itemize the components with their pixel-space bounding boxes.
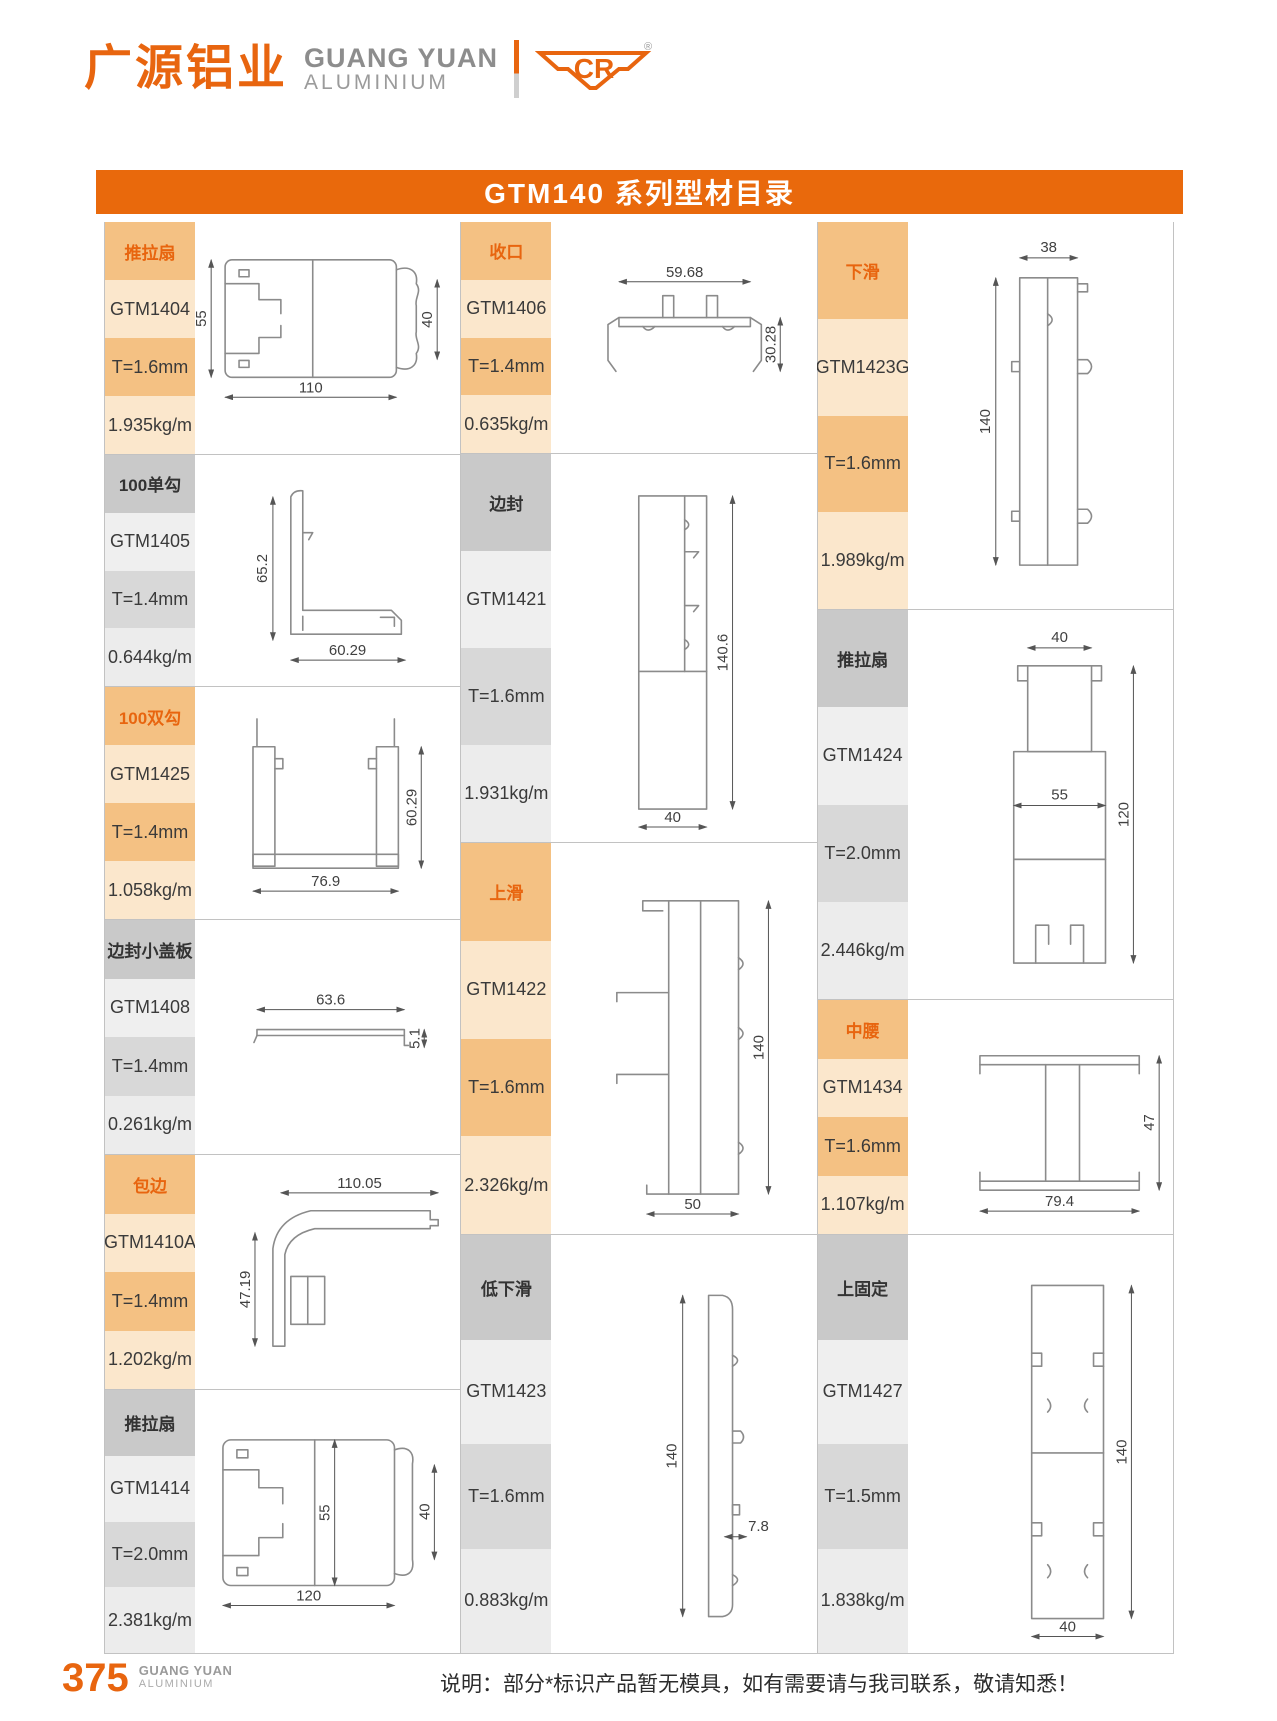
profile-drawing-gtm1427: 140 40 bbox=[908, 1235, 1173, 1653]
cr-logo-letters: CR bbox=[574, 53, 614, 84]
dim-label: 47 bbox=[1141, 1114, 1158, 1131]
dim-label: 59.68 bbox=[666, 264, 703, 281]
dim-label: 50 bbox=[685, 1196, 702, 1213]
model-cell: GTM1414 bbox=[105, 1456, 195, 1522]
logo-divider bbox=[514, 40, 519, 98]
profile-drawing-gtm1404: 55 110 40 bbox=[195, 222, 460, 454]
dim-label: 40 bbox=[416, 1503, 433, 1520]
dim-label: 120 bbox=[296, 1587, 321, 1604]
product-group-gtm1408: 边封小盖板 GTM1408 T=1.4mm 0.261kg/m 63.6 5.1 bbox=[105, 920, 460, 1155]
brand-name-en: GUANG YUAN ALUMINIUM bbox=[304, 44, 498, 94]
catalog-column-1: 推拉扇 GTM1404 T=1.6mm 1.935kg/m bbox=[105, 222, 460, 1653]
profile-geometry bbox=[608, 296, 761, 372]
drawing-area: 63.6 5.1 bbox=[195, 920, 460, 1154]
label-column: 上滑 GTM1422 T=1.6mm 2.326kg/m bbox=[461, 843, 551, 1234]
category-cell: 低下滑 bbox=[461, 1235, 551, 1340]
brand-en-line2: ALUMINIUM bbox=[304, 72, 498, 94]
weight-cell: 2.326kg/m bbox=[461, 1136, 551, 1234]
dim-label: 55 bbox=[317, 1504, 334, 1521]
thickness-cell: T=1.4mm bbox=[105, 1037, 195, 1096]
drawing-area: 40 55 120 bbox=[908, 610, 1173, 999]
profile-geometry bbox=[980, 1056, 1139, 1190]
profile-geometry bbox=[639, 496, 707, 809]
thickness-cell: T=1.6mm bbox=[105, 338, 195, 396]
dim-label: 60.29 bbox=[329, 642, 366, 659]
thickness-cell: T=1.4mm bbox=[105, 1272, 195, 1331]
product-group-gtm1414: 推拉扇 GTM1414 T=2.0mm 2.381kg/m bbox=[105, 1390, 460, 1653]
catalog-title: GTM140 系列型材目录 bbox=[484, 172, 795, 212]
thickness-cell: T=1.4mm bbox=[461, 338, 551, 396]
profile-drawing-gtm1421: 140.6 40 bbox=[551, 454, 816, 842]
profile-drawing-gtm1423: 140 7.8 bbox=[551, 1235, 816, 1653]
model-cell: GTM1405 bbox=[105, 513, 195, 571]
profile-geometry bbox=[1013, 666, 1105, 963]
model-cell: GTM1408 bbox=[105, 979, 195, 1038]
thickness-cell: T=1.6mm bbox=[818, 416, 908, 513]
profile-drawing-gtm1414: 55 120 40 bbox=[195, 1390, 460, 1653]
profile-drawing-gtm1434: 79.4 47 bbox=[908, 1000, 1173, 1234]
category-cell: 中腰 bbox=[818, 1000, 908, 1059]
weight-cell: 2.446kg/m bbox=[818, 902, 908, 999]
product-group-gtm1423: 低下滑 GTM1423 T=1.6mm 0.883kg/m 140 bbox=[461, 1235, 816, 1653]
model-cell: GTM1425 bbox=[105, 745, 195, 803]
weight-cell: 0.644kg/m bbox=[105, 628, 195, 686]
label-column: 100单勾 GTM1405 T=1.4mm 0.644kg/m bbox=[105, 455, 195, 686]
footer-brand-line2: ALUMINIUM bbox=[139, 1678, 233, 1690]
label-column: 推拉扇 GTM1424 T=2.0mm 2.446kg/m bbox=[818, 610, 908, 999]
category-cell: 100双勾 bbox=[105, 687, 195, 745]
dim-label: 140 bbox=[751, 1035, 768, 1060]
dim-label: 40 bbox=[419, 311, 436, 328]
label-column: 包边 GTM1410A T=1.4mm 1.202kg/m bbox=[105, 1155, 195, 1389]
label-column: 上固定 GTM1427 T=1.5mm 1.838kg/m bbox=[818, 1235, 908, 1653]
model-cell: GTM1423G bbox=[818, 319, 908, 416]
category-cell: 推拉扇 bbox=[105, 1390, 195, 1456]
drawing-area: 140 7.8 bbox=[551, 1235, 816, 1653]
thickness-cell: T=1.5mm bbox=[818, 1444, 908, 1549]
drawing-area: 76.9 60.29 bbox=[195, 687, 460, 919]
profile-drawing-gtm1423g: 38 140 bbox=[908, 222, 1173, 609]
dim-label: 120 bbox=[1115, 802, 1132, 827]
dim-label: 7.8 bbox=[748, 1518, 769, 1535]
profile-geometry bbox=[253, 719, 398, 868]
dim-label: 40 bbox=[665, 809, 682, 826]
profile-drawing-gtm1406: 59.68 30.28 bbox=[551, 222, 816, 453]
label-column: 低下滑 GTM1423 T=1.6mm 0.883kg/m bbox=[461, 1235, 551, 1653]
dim-label: 140.6 bbox=[715, 634, 732, 671]
label-column: 推拉扇 GTM1404 T=1.6mm 1.935kg/m bbox=[105, 222, 195, 454]
profile-geometry bbox=[273, 1211, 438, 1346]
drawing-area: 140 40 bbox=[908, 1235, 1173, 1653]
label-column: 下滑 GTM1423G T=1.6mm 1.989kg/m bbox=[818, 222, 908, 609]
drawing-area: 59.68 30.28 bbox=[551, 222, 816, 453]
dim-label: 76.9 bbox=[311, 873, 340, 890]
drawing-area: 140 50 bbox=[551, 843, 816, 1234]
model-cell: GTM1427 bbox=[818, 1340, 908, 1445]
category-cell: 推拉扇 bbox=[105, 222, 195, 280]
category-cell: 下滑 bbox=[818, 222, 908, 319]
thickness-cell: T=1.6mm bbox=[461, 1444, 551, 1549]
label-column: 边封小盖板 GTM1408 T=1.4mm 0.261kg/m bbox=[105, 920, 195, 1154]
product-group-gtm1424: 推拉扇 GTM1424 T=2.0mm 2.446kg/m bbox=[818, 610, 1173, 1000]
profile-geometry bbox=[291, 491, 402, 635]
product-group-gtm1404: 推拉扇 GTM1404 T=1.6mm 1.935kg/m bbox=[105, 222, 460, 455]
drawing-area: 55 110 40 bbox=[195, 222, 460, 454]
brand-en-line1: GUANG YUAN bbox=[304, 44, 498, 72]
weight-cell: 1.058kg/m bbox=[105, 861, 195, 919]
dim-label: 47.19 bbox=[237, 1271, 254, 1308]
dim-label: 65.2 bbox=[254, 554, 271, 583]
brand-name-cn: 广源铝业 bbox=[84, 45, 288, 93]
dim-label: 140 bbox=[664, 1443, 681, 1468]
dim-label: 63.6 bbox=[316, 992, 345, 1009]
weight-cell: 1.989kg/m bbox=[818, 512, 908, 609]
category-cell: 推拉扇 bbox=[818, 610, 908, 707]
dim-label: 40 bbox=[1059, 1619, 1076, 1636]
model-cell: GTM1410A bbox=[105, 1214, 195, 1273]
dim-label: 5.1 bbox=[406, 1028, 423, 1049]
category-cell: 上固定 bbox=[818, 1235, 908, 1340]
page-footer: 375 GUANG YUAN ALUMINIUM bbox=[62, 1660, 232, 1696]
category-cell: 边封 bbox=[461, 454, 551, 551]
catalog-title-bar: GTM140 系列型材目录 bbox=[96, 170, 1183, 214]
category-cell: 边封小盖板 bbox=[105, 920, 195, 979]
dim-label: 40 bbox=[1051, 629, 1068, 646]
dim-label: 60.29 bbox=[403, 789, 420, 826]
catalog-column-3: 下滑 GTM1423G T=1.6mm 1.989kg/m bbox=[817, 222, 1173, 1653]
label-column: 收口 GTM1406 T=1.4mm 0.635kg/m bbox=[461, 222, 551, 453]
registered-mark: ® bbox=[644, 41, 652, 53]
profile-geometry bbox=[709, 1295, 744, 1616]
thickness-cell: T=2.0mm bbox=[818, 805, 908, 902]
profile-geometry bbox=[617, 901, 743, 1194]
weight-cell: 1.935kg/m bbox=[105, 396, 195, 454]
dim-label: 140 bbox=[976, 409, 993, 434]
dim-label: 30.28 bbox=[763, 326, 780, 363]
footer-note: 说明：部分*标识产品暂无模具，如有需要请与我司联系，敬请知悉！ bbox=[440, 1668, 1078, 1698]
model-cell: GTM1424 bbox=[818, 707, 908, 804]
profile-drawing-gtm1422: 140 50 bbox=[551, 843, 816, 1234]
category-cell: 上滑 bbox=[461, 843, 551, 941]
product-group-gtm1410a: 包边 GTM1410A T=1.4mm 1.202kg/m 110.05 47.… bbox=[105, 1155, 460, 1390]
model-cell: GTM1406 bbox=[461, 280, 551, 338]
profile-catalog-table: 推拉扇 GTM1404 T=1.6mm 1.935kg/m bbox=[104, 222, 1174, 1654]
footer-brand: GUANG YUAN ALUMINIUM bbox=[139, 1664, 233, 1690]
dim-label: 55 bbox=[1051, 787, 1068, 804]
drawing-area: 55 120 40 bbox=[195, 1390, 460, 1653]
profile-drawing-gtm1425: 76.9 60.29 bbox=[195, 687, 460, 919]
product-group-gtm1423g: 下滑 GTM1423G T=1.6mm 1.989kg/m bbox=[818, 222, 1173, 610]
profile-drawing-gtm1424: 40 55 120 bbox=[908, 610, 1173, 999]
model-cell: GTM1434 bbox=[818, 1059, 908, 1118]
profile-geometry bbox=[1011, 278, 1091, 565]
drawing-area: 110.05 47.19 bbox=[195, 1155, 460, 1389]
weight-cell: 0.883kg/m bbox=[461, 1549, 551, 1654]
product-group-gtm1405: 100单勾 GTM1405 T=1.4mm 0.644kg/m 65.2 bbox=[105, 455, 460, 687]
weight-cell: 1.838kg/m bbox=[818, 1549, 908, 1654]
model-cell: GTM1422 bbox=[461, 941, 551, 1039]
footer-brand-line1: GUANG YUAN bbox=[139, 1664, 233, 1678]
thickness-cell: T=1.6mm bbox=[461, 1039, 551, 1137]
dim-label: 38 bbox=[1040, 239, 1057, 256]
product-group-gtm1434: 中腰 GTM1434 T=1.6mm 1.107kg/m bbox=[818, 1000, 1173, 1235]
model-cell: GTM1423 bbox=[461, 1340, 551, 1445]
thickness-cell: T=1.6mm bbox=[461, 648, 551, 745]
product-group-gtm1421: 边封 GTM1421 T=1.6mm 1.931kg/m bbox=[461, 454, 816, 843]
profile-drawing-gtm1405: 65.2 60.29 bbox=[195, 455, 460, 686]
drawing-area: 79.4 47 bbox=[908, 1000, 1173, 1234]
category-cell: 收口 bbox=[461, 222, 551, 280]
drawing-area: 65.2 60.29 bbox=[195, 455, 460, 686]
label-column: 中腰 GTM1434 T=1.6mm 1.107kg/m bbox=[818, 1000, 908, 1234]
weight-cell: 1.202kg/m bbox=[105, 1331, 195, 1390]
product-group-gtm1427: 上固定 GTM1427 T=1.5mm 1.838kg/m bbox=[818, 1235, 1173, 1653]
label-column: 100双勾 GTM1425 T=1.4mm 1.058kg/m bbox=[105, 687, 195, 919]
brand-header: 广源铝业 GUANG YUAN ALUMINIUM CR ® bbox=[84, 38, 655, 100]
dim-label: 110.05 bbox=[337, 1175, 382, 1192]
weight-cell: 1.931kg/m bbox=[461, 745, 551, 842]
dim-label: 55 bbox=[195, 310, 210, 327]
label-column: 边封 GTM1421 T=1.6mm 1.931kg/m bbox=[461, 454, 551, 842]
weight-cell: 0.635kg/m bbox=[461, 395, 551, 453]
drawing-area: 140.6 40 bbox=[551, 454, 816, 842]
product-group-gtm1406: 收口 GTM1406 T=1.4mm 0.635kg/m bbox=[461, 222, 816, 454]
page-number: 375 bbox=[62, 1660, 129, 1696]
thickness-cell: T=1.4mm bbox=[105, 571, 195, 629]
thickness-cell: T=1.4mm bbox=[105, 803, 195, 861]
profile-geometry bbox=[1031, 1285, 1103, 1618]
product-group-gtm1422: 上滑 GTM1422 T=1.6mm 2.326kg/m bbox=[461, 843, 816, 1235]
profile-drawing-gtm1408: 63.6 5.1 bbox=[195, 920, 460, 1154]
dim-label: 140 bbox=[1113, 1440, 1130, 1465]
model-cell: GTM1421 bbox=[461, 551, 551, 648]
category-cell: 100单勾 bbox=[105, 455, 195, 513]
profile-geometry bbox=[225, 260, 418, 377]
thickness-cell: T=1.6mm bbox=[818, 1117, 908, 1176]
weight-cell: 0.261kg/m bbox=[105, 1096, 195, 1155]
dim-label: 110 bbox=[299, 379, 323, 396]
thickness-cell: T=2.0mm bbox=[105, 1522, 195, 1588]
catalog-column-2: 收口 GTM1406 T=1.4mm 0.635kg/m bbox=[460, 222, 816, 1653]
profile-geometry bbox=[254, 1030, 408, 1046]
drawing-area: 38 140 bbox=[908, 222, 1173, 609]
product-group-gtm1425: 100双勾 GTM1425 T=1.4mm 1.058kg/m bbox=[105, 687, 460, 920]
model-cell: GTM1404 bbox=[105, 280, 195, 338]
dim-label: 79.4 bbox=[1045, 1193, 1074, 1210]
weight-cell: 1.107kg/m bbox=[818, 1176, 908, 1235]
label-column: 推拉扇 GTM1414 T=2.0mm 2.381kg/m bbox=[105, 1390, 195, 1653]
profile-drawing-gtm1410a: 110.05 47.19 bbox=[195, 1155, 460, 1389]
weight-cell: 2.381kg/m bbox=[105, 1587, 195, 1653]
category-cell: 包边 bbox=[105, 1155, 195, 1214]
cr-logo-icon: CR ® bbox=[535, 38, 655, 100]
